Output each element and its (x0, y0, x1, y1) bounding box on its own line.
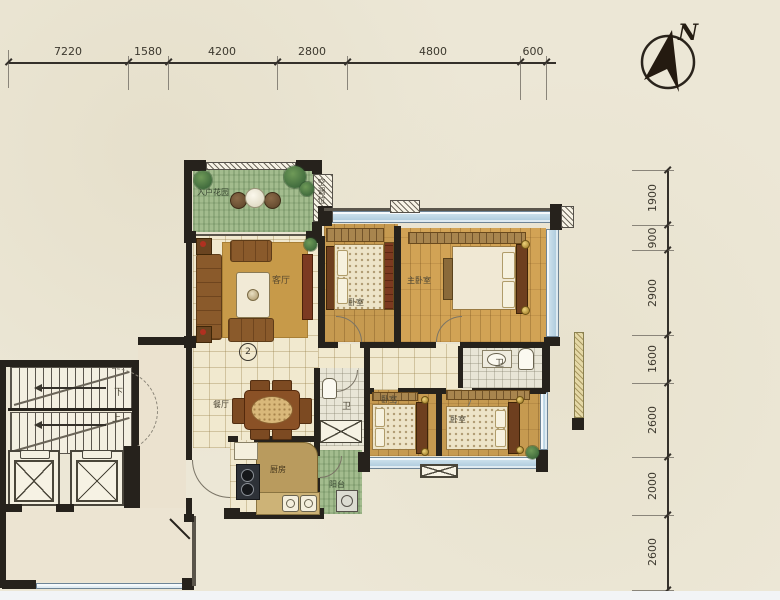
room-label-kitchen: 厨房 (270, 466, 286, 474)
sofa-armchair (228, 318, 274, 342)
wardrobe (326, 228, 384, 242)
dim-top-600: 600 (503, 46, 563, 57)
dining-table-top (251, 396, 293, 424)
room-label-garden: 入户花园 (197, 189, 229, 197)
elevator-car (76, 460, 118, 502)
red-lamp (200, 329, 206, 335)
kitchen-counter (256, 442, 318, 494)
nightstand-lamp (421, 448, 429, 456)
tv-cabinet (302, 254, 313, 320)
sink-drain (304, 499, 313, 508)
wall-segment (184, 231, 196, 243)
wall-segment (572, 418, 584, 430)
dim-right-1900: 1900 (647, 176, 659, 220)
stair-arrowhead (34, 421, 42, 429)
dim-right-2600a: 2600 (647, 398, 659, 442)
bed-headboard (416, 402, 428, 454)
dim-top-4800: 4800 (403, 46, 463, 57)
room-label-living: 客厅 (272, 277, 290, 286)
stair-arrow (42, 424, 106, 426)
room-label-bedroom-right: 卧室 (450, 416, 466, 424)
room-label-bedroom-mid: 卧室 (381, 396, 397, 404)
wall-segment (0, 360, 6, 588)
pier-top-right (561, 206, 574, 228)
plant-icon (300, 182, 314, 196)
bed-pillow (502, 281, 515, 308)
dim-top-1580: 1580 (118, 46, 178, 57)
wall-segment (460, 342, 548, 348)
garden-table (245, 188, 265, 208)
wall-segment (224, 508, 240, 519)
nightstand-lamp (421, 396, 429, 404)
wall-segment (318, 342, 338, 348)
nightstand-lamp (516, 446, 524, 454)
room-label-master: 主卧室 (407, 277, 431, 285)
wall-segment (2, 360, 136, 367)
wall-segment (542, 346, 550, 392)
wardrobe (408, 232, 526, 244)
dim-right-1600: 1600 (647, 337, 659, 381)
window-bedroom-right (540, 392, 548, 450)
lobby-floor (2, 508, 192, 582)
bed-pillow (495, 429, 506, 447)
plant-icon (194, 171, 212, 189)
nightstand-lamp (521, 306, 530, 315)
room-label-dining: 餐厅 (213, 401, 229, 409)
wardrobe (384, 242, 394, 310)
wall-segment (458, 346, 463, 388)
pier-top (390, 200, 420, 213)
nightstand-lamp (521, 240, 530, 249)
stair-arrowhead (34, 384, 42, 392)
wall-segment (184, 514, 194, 522)
red-lamp (200, 241, 206, 247)
dim-right-2000: 2000 (647, 464, 659, 508)
door-arc-entry (192, 460, 230, 498)
elevator-door (82, 450, 112, 459)
plant-icon (526, 446, 539, 459)
bath-main-toilet (518, 348, 534, 370)
plant-icon (304, 238, 317, 251)
dim-right-2600b: 2600 (647, 530, 659, 574)
bath-small-toilet (322, 378, 337, 399)
bottom-strip (0, 591, 780, 600)
section-wall-strip (574, 332, 584, 418)
stove-burner (241, 483, 254, 496)
wall-segment (394, 226, 401, 344)
bed-pillow (337, 250, 348, 276)
nightstand-lamp (516, 396, 524, 404)
room-label-bedroom-top: 卧室 (348, 299, 364, 307)
garden-chair (264, 192, 281, 209)
kitchen-sink-unit (234, 442, 258, 460)
table-lamp (247, 289, 259, 301)
wall-segment (312, 160, 322, 174)
sliding-door-track (192, 234, 316, 236)
wall-segment (138, 337, 188, 345)
dim-right-900: 900 (647, 216, 659, 260)
dining-chair (298, 398, 312, 424)
north-compass: N (634, 24, 706, 96)
room-label-balcony: 阳台 (329, 481, 345, 489)
balcony-railing (206, 162, 296, 170)
room-label-bath-main: 卫 (495, 360, 504, 369)
bed-headboard (516, 244, 528, 314)
elevator-door (20, 450, 50, 459)
wall-segment (192, 516, 196, 586)
wall-segment (124, 446, 140, 508)
wall-segment (186, 243, 192, 338)
dim-top-7220: 7220 (38, 46, 98, 57)
bed-pillow (375, 428, 385, 447)
elevator-car (14, 460, 54, 502)
unit-number-marker: 2 (239, 343, 257, 361)
window-top-band (330, 211, 552, 223)
floor-plan-sheet: 7220 1580 4200 2800 4800 600 1900 900 29… (0, 0, 780, 600)
room-label-ac: 空调位 (317, 178, 325, 220)
window-lobby (36, 583, 184, 589)
bed-pillow (502, 252, 515, 279)
wall-segment (184, 160, 206, 171)
unit-number: 2 (245, 347, 251, 357)
stove-burner (241, 469, 254, 482)
bed-pillow (495, 410, 506, 428)
wall-segment (318, 236, 325, 342)
sofa-armchair (230, 240, 272, 262)
dim-right-2900: 2900 (647, 271, 659, 315)
dim-top-2800: 2800 (282, 46, 342, 57)
window-master-bay (546, 229, 559, 337)
wall-segment (56, 504, 74, 512)
wall-segment (2, 580, 36, 589)
window-sill-detail (420, 464, 458, 478)
wall-segment (186, 348, 192, 460)
wall-segment (364, 346, 370, 456)
dim-top-4200: 4200 (192, 46, 252, 57)
wall-segment (2, 504, 22, 512)
room-label-bath-small: 卫 (342, 403, 351, 412)
washing-machine-drum (341, 495, 353, 507)
compass-north-label: N (678, 20, 698, 46)
wall-segment (436, 394, 442, 456)
bed-pillow (375, 408, 385, 427)
stair-arrow (42, 387, 106, 389)
bath-small-shower (320, 420, 362, 443)
bed-bench (443, 258, 453, 300)
sink-drain (286, 499, 295, 508)
wall-segment (324, 208, 558, 211)
bed-pillow (337, 278, 348, 304)
wall-segment (360, 342, 436, 348)
